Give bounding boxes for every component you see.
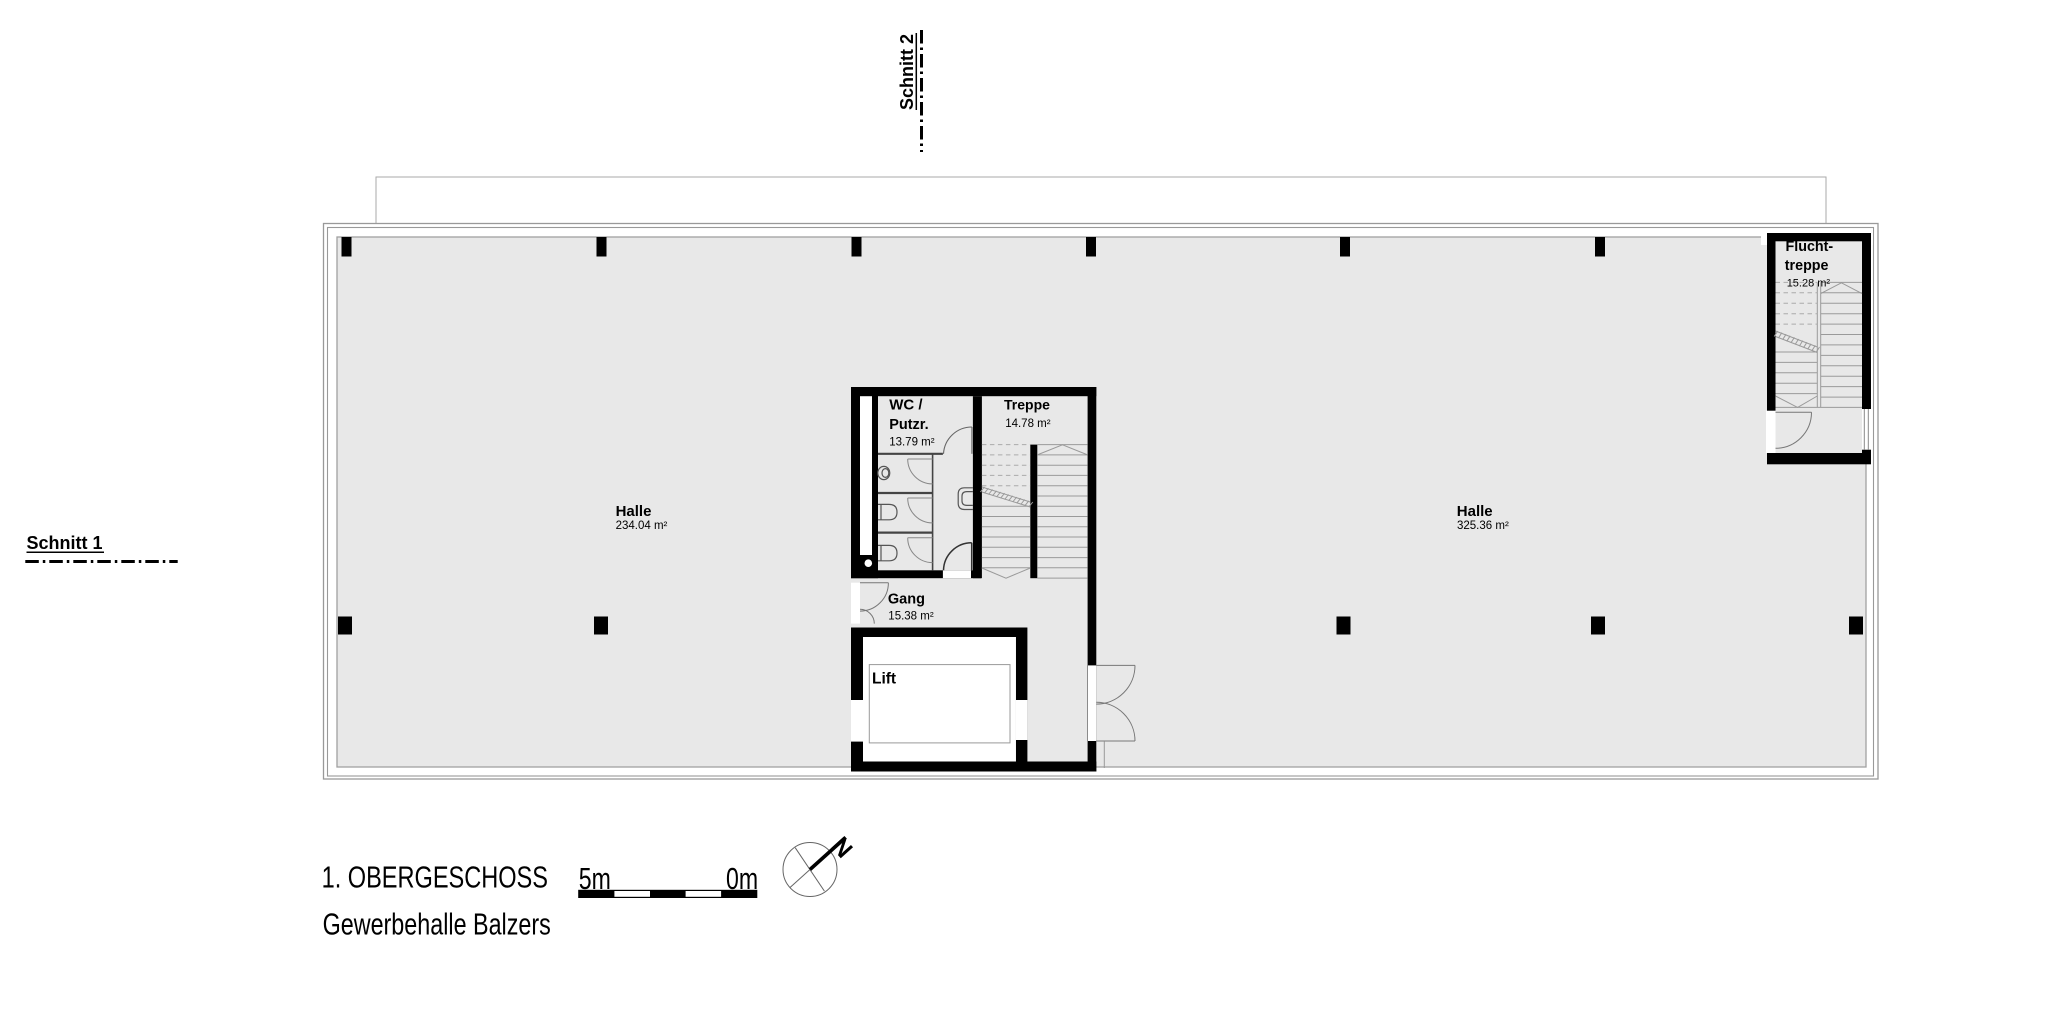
svg-text:Lift: Lift	[872, 671, 896, 688]
svg-text:Gewerbehalle Balzers: Gewerbehalle Balzers	[323, 906, 551, 941]
svg-text:Schnitt 1: Schnitt 1	[27, 533, 103, 553]
svg-text:Halle: Halle	[1457, 503, 1493, 520]
svg-text:Flucht-: Flucht-	[1786, 239, 1834, 255]
svg-text:325.36 m²: 325.36 m²	[1457, 520, 1509, 532]
svg-text:234.04 m²: 234.04 m²	[616, 520, 668, 532]
svg-text:WC /: WC /	[889, 396, 923, 413]
svg-text:1. OBERGESCHOSS: 1. OBERGESCHOSS	[322, 859, 548, 894]
svg-text:15.28 m²: 15.28 m²	[1787, 277, 1831, 289]
svg-text:Halle: Halle	[616, 503, 652, 520]
svg-text:treppe: treppe	[1785, 258, 1829, 274]
svg-text:Treppe: Treppe	[1004, 396, 1050, 412]
svg-text:Putzr.: Putzr.	[889, 417, 928, 433]
svg-text:14.78 m²: 14.78 m²	[1005, 418, 1051, 430]
svg-text:13.79 m²: 13.79 m²	[889, 437, 935, 449]
svg-text:15.38 m²: 15.38 m²	[888, 610, 934, 622]
svg-text:Schnitt 2: Schnitt 2	[897, 34, 917, 110]
svg-text:Gang: Gang	[888, 592, 925, 608]
